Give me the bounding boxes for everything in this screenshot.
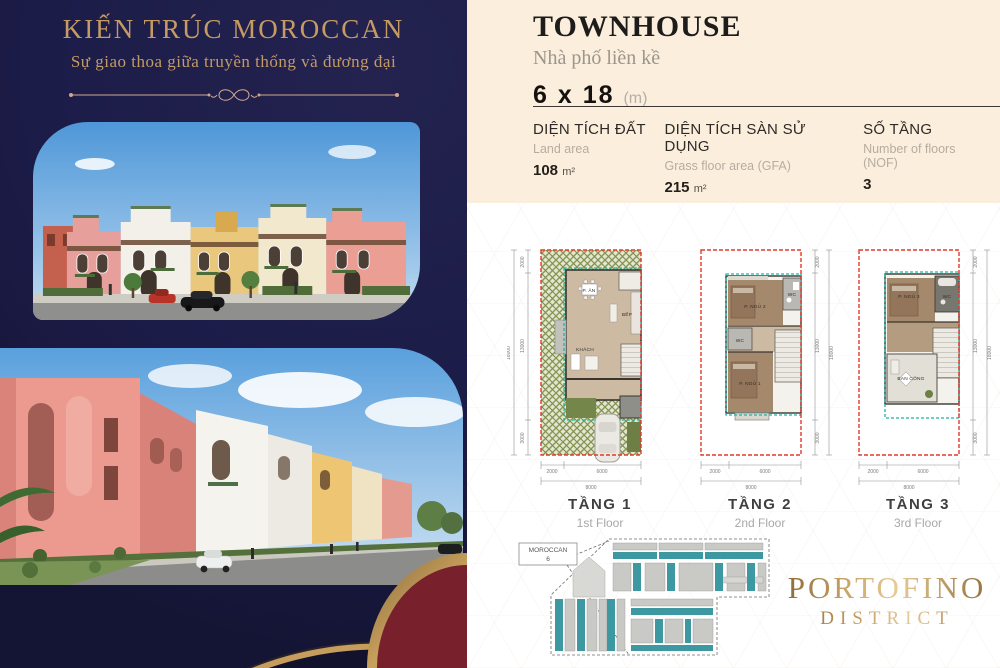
floor-2-label: TẦNG 2 — [685, 496, 835, 513]
room-label-living: KHÁCH — [576, 346, 594, 353]
svg-text:2000: 2000 — [546, 469, 557, 475]
svg-text:18000: 18000 — [987, 346, 993, 360]
master-plan-map: MOROCCAN 6 — [517, 533, 782, 663]
svg-text:2000: 2000 — [867, 469, 878, 475]
floor-plan-1: 18000 2000 13000 3000 — [507, 232, 657, 494]
svg-text:6000: 6000 — [759, 469, 770, 475]
plan3-horizontal-dimensions: 2000 6000 8000 — [859, 461, 959, 491]
spec-panel: TOWNHOUSE Nhà phố liền kề 6 x 18 (m) DIỆ… — [467, 0, 1000, 668]
corner-maroon-fill — [377, 565, 467, 668]
floor-1-sublabel: 1st Floor — [525, 516, 675, 530]
room-label-dining: P. ĂN — [583, 287, 596, 294]
svg-text:8000: 8000 — [745, 485, 756, 491]
architecture-title: KIẾN TRÚC MOROCCAN — [10, 14, 457, 45]
room-label-bed2: P. NGỦ 2 — [744, 303, 766, 310]
svg-text:2000: 2000 — [973, 256, 979, 267]
svg-text:3000: 3000 — [973, 432, 979, 443]
room-label-bed1: P. NGỦ 1 — [739, 380, 761, 387]
svg-text:13000: 13000 — [973, 339, 979, 353]
plan1-vertical-dimensions: 18000 2000 13000 3000 — [507, 250, 531, 455]
district-wordmark: PORTOFINO DISTRICT — [787, 570, 987, 630]
lot-size-unit: (m) — [623, 90, 647, 107]
floor-2-sublabel: 2nd Floor — [685, 516, 835, 530]
townhouse-header: TOWNHOUSE Nhà phố liền kề 6 x 18 (m) DIỆ… — [467, 0, 1000, 203]
townhouse-row-photo — [33, 122, 420, 320]
header-divider — [533, 106, 1000, 107]
plan2-vertical-dimensions: 2000 13000 3000 18000 — [812, 250, 835, 455]
plan-column-1: 18000 2000 13000 3000 — [507, 232, 657, 530]
floor-1-label: TẦNG 1 — [525, 496, 675, 513]
district-word: DISTRICT — [787, 608, 987, 630]
svg-text:18000: 18000 — [507, 346, 512, 360]
svg-text:2000: 2000 — [520, 256, 526, 267]
product-title: TOWNHOUSE — [533, 10, 1000, 44]
svg-text:6000: 6000 — [596, 469, 607, 475]
room-label-wc-mid: WC — [736, 338, 745, 344]
room-label-kitchen: BẾP — [622, 311, 632, 318]
plan-column-3: P. NGỦ 3 WC BAN CÔNG 2000 13000 3000 180… — [843, 232, 993, 530]
spec-floors: SỐ TẦNG Number of floors (NOF) 3 — [863, 121, 1000, 196]
svg-text:6000: 6000 — [917, 469, 928, 475]
svg-text:13000: 13000 — [520, 339, 526, 353]
svg-text:2000: 2000 — [709, 469, 720, 475]
floor-plans-row: 18000 2000 13000 3000 — [467, 232, 993, 530]
svg-text:8000: 8000 — [903, 485, 914, 491]
spec-columns: DIỆN TÍCH ĐẤT Land area 108 m² DIỆN TÍCH… — [533, 121, 1000, 196]
product-subtitle: Nhà phố liền kề — [533, 47, 1000, 70]
street-perspective-photo — [0, 348, 463, 585]
svg-text:3000: 3000 — [520, 432, 526, 443]
plan3-vertical-dimensions: 2000 13000 3000 18000 — [970, 250, 993, 455]
floor-plan-3: P. NGỦ 3 WC BAN CÔNG 2000 13000 3000 180… — [843, 232, 993, 494]
floor-3-label: TẦNG 3 — [843, 496, 993, 513]
svg-text:8000: 8000 — [585, 485, 596, 491]
spec-land-area: DIỆN TÍCH ĐẤT Land area 108 m² — [533, 121, 665, 196]
plan-column-2: WC P. NGỦ 2 WC P. NGỦ 1 2000 13000 3000 … — [685, 232, 835, 530]
left-brand-panel: KIẾN TRÚC MOROCCAN Sự giao thoa giữa tru… — [0, 0, 467, 668]
corner-ribbon-decoration — [367, 553, 467, 668]
lot-size-value: 6 x 18 — [533, 81, 615, 109]
district-name: PORTOFINO — [787, 570, 987, 606]
floor-3-sublabel: 3rd Floor — [843, 516, 993, 530]
svg-text:3000: 3000 — [815, 432, 821, 443]
room-label-bed3: P. NGỦ 3 — [898, 293, 920, 300]
map-zone-number: 6 — [546, 556, 550, 563]
spec-gfa: DIỆN TÍCH SÀN SỬ DỤNG Grass floor area (… — [665, 121, 864, 196]
map-zone-label: MOROCCAN — [529, 547, 568, 554]
room-label-wc3: WC — [943, 294, 952, 300]
plan1-horizontal-dimensions: 2000 6000 8000 — [541, 461, 641, 491]
divider-ornament-icon — [59, 82, 409, 108]
room-label-balcony: BAN CÔNG — [897, 375, 924, 382]
floor-plan-2: WC P. NGỦ 2 WC P. NGỦ 1 2000 13000 3000 … — [685, 232, 835, 494]
plan2-horizontal-dimensions: 2000 6000 8000 — [701, 461, 801, 491]
svg-text:13000: 13000 — [815, 339, 821, 353]
svg-text:2000: 2000 — [815, 256, 821, 267]
room-label-wc-top: WC — [788, 292, 797, 298]
svg-text:18000: 18000 — [829, 346, 835, 360]
architecture-subtitle: Sự giao thoa giữa truyền thống và đương … — [0, 52, 467, 72]
